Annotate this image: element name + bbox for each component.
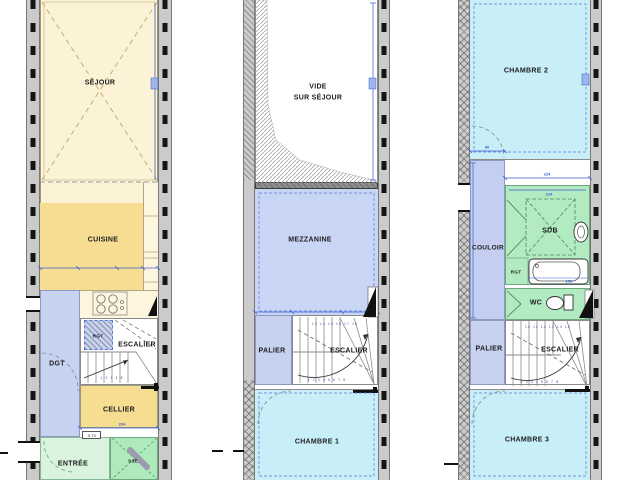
label-cuisine: CUISINE	[88, 237, 119, 244]
label-chambre1: CHAMBRE 1	[295, 439, 339, 446]
kitchen-counter-bottom	[80, 290, 158, 318]
wall-first-right	[378, 0, 390, 480]
wall-tick-second-left	[444, 463, 458, 465]
wall-dash-pattern	[31, 0, 36, 480]
label-palier-first: PALIER	[259, 348, 286, 355]
room-mezzanine	[255, 189, 378, 315]
window-ground-left-entry	[26, 441, 40, 463]
wall-ground-right	[158, 0, 172, 480]
label-wc: WC	[530, 300, 542, 307]
section-cut-mark	[233, 450, 244, 452]
dim-sdb-width-a: 224	[544, 172, 551, 177]
dim-sdb-width-b: 224	[546, 192, 553, 197]
label-vide-line2: SUR SÉJOUR	[294, 95, 343, 102]
wall-second-right	[590, 0, 602, 480]
stair-step-numbers-first-top: 13 14 15 16 17 18	[312, 322, 358, 326]
label-palier-second: PALIER	[476, 346, 503, 353]
label-escalier-second: ESCALIER	[541, 347, 579, 354]
dim-chambre2-door: 90	[485, 145, 489, 150]
stair-step-numbers-second-bottom: 1 2 3 4 5 6 7 8	[521, 380, 559, 384]
label-couloir: COULOIR	[472, 245, 504, 252]
room-cuisine	[40, 203, 143, 290]
window-ground-left-kitchen	[26, 296, 40, 312]
label-dgt: DGT	[49, 361, 65, 368]
label-rgt-ground: RGT	[93, 333, 104, 338]
mezzanine-guard-band	[255, 182, 378, 189]
label-escalier-ground: ESCALIER	[118, 342, 156, 349]
label-cellier: CELLIER	[103, 407, 135, 414]
wall-first-left	[243, 0, 255, 480]
section-cut-mark	[0, 452, 8, 454]
label-entree: ENTRÉE	[58, 461, 88, 468]
label-vide-line1: VIDE	[309, 84, 327, 91]
door-width-box: 0.73	[82, 431, 101, 439]
room-sejour	[40, 0, 158, 203]
room-entree	[40, 437, 110, 480]
label-chambre2: CHAMBRE 2	[504, 68, 548, 75]
dim-tub: 158	[566, 279, 573, 284]
room-chambre1	[255, 389, 378, 480]
stair-step-numbers-ground: 1 2 3 4 5	[100, 376, 123, 380]
wall-ground-left	[26, 0, 40, 480]
wall-dash-pattern	[163, 0, 168, 480]
window-tick	[18, 461, 32, 463]
wall-dash-pattern	[594, 0, 599, 480]
door-width-value: 0.73	[88, 433, 96, 438]
room-chambre3	[470, 389, 590, 480]
label-sde: SdE	[128, 458, 138, 463]
room-chambre2	[470, 0, 590, 160]
label-escalier-first: ESCALIER	[330, 348, 368, 355]
room-palier-second	[470, 320, 505, 385]
window-second-left-couloir	[458, 183, 470, 212]
room-wc	[505, 288, 590, 320]
dim-cellier: 204	[119, 422, 126, 427]
wall-second-left	[458, 0, 470, 480]
label-mezzanine: MEZZANINE	[288, 237, 332, 244]
stair-step-numbers-first-bottom: 1 2 3 4 5 6 7 8	[308, 378, 346, 382]
label-sdb: SDB	[542, 228, 558, 235]
room-vide-sur-sejour	[255, 0, 378, 183]
window-tick	[18, 441, 32, 443]
stair-step-numbers-second-top: 10 11 12 13 14 15	[525, 325, 571, 329]
section-cut-mark	[212, 450, 223, 452]
label-rgt-second: RGT	[511, 269, 522, 274]
label-sejour: SÉJOUR	[85, 80, 116, 87]
label-chambre3: CHAMBRE 3	[505, 437, 549, 444]
room-couloir	[470, 160, 505, 320]
wall-dash-pattern	[382, 0, 387, 480]
floor-plan-sheet: 0.73	[0, 0, 640, 480]
